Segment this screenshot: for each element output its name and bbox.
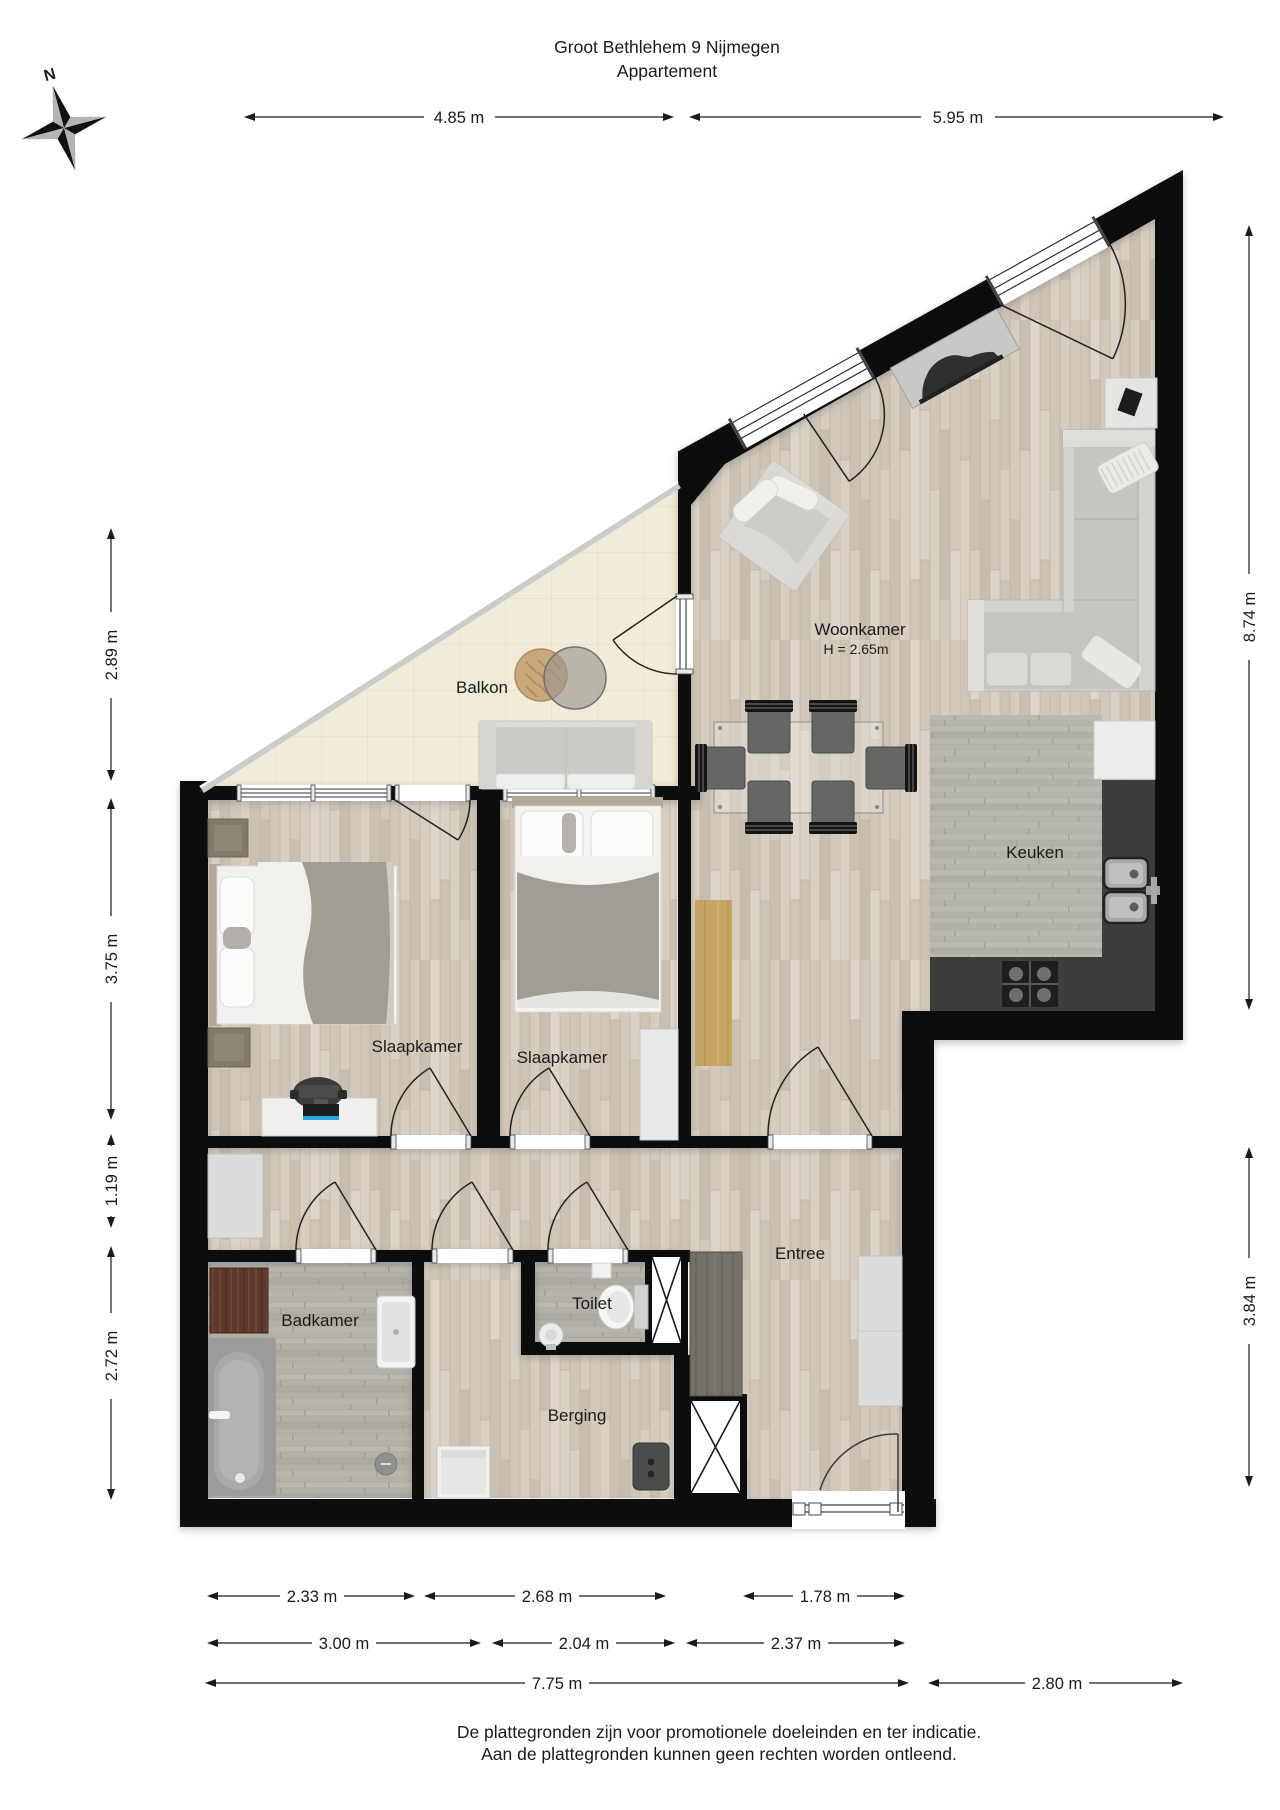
svg-text:Groot Bethlehem 9 Nijmegen: Groot Bethlehem 9 Nijmegen	[554, 37, 780, 57]
svg-text:3.00 m: 3.00 m	[319, 1635, 369, 1653]
svg-text:2.68 m: 2.68 m	[522, 1588, 572, 1606]
svg-text:1.78 m: 1.78 m	[800, 1588, 850, 1606]
svg-text:De plattegronden zijn voor pro: De plattegronden zijn voor promotionele …	[457, 1722, 981, 1742]
svg-text:Entree: Entree	[775, 1244, 825, 1263]
svg-text:Badkamer: Badkamer	[281, 1311, 359, 1330]
svg-text:2.89 m: 2.89 m	[103, 630, 121, 680]
svg-text:Appartement: Appartement	[617, 61, 717, 81]
svg-text:7.75 m: 7.75 m	[532, 1675, 582, 1693]
svg-text:2.37 m: 2.37 m	[771, 1635, 821, 1653]
svg-text:3.84 m: 3.84 m	[1241, 1276, 1259, 1326]
svg-text:1.19 m: 1.19 m	[103, 1156, 121, 1206]
svg-text:2.72 m: 2.72 m	[103, 1331, 121, 1381]
svg-text:8.74 m: 8.74 m	[1241, 592, 1259, 642]
svg-text:2.33 m: 2.33 m	[287, 1588, 337, 1606]
svg-text:2.80 m: 2.80 m	[1032, 1675, 1082, 1693]
svg-text:Woonkamer: Woonkamer	[814, 620, 906, 639]
svg-text:4.85 m: 4.85 m	[434, 109, 484, 127]
svg-text:Keuken: Keuken	[1006, 843, 1064, 862]
svg-text:5.95 m: 5.95 m	[933, 109, 983, 127]
svg-text:3.75 m: 3.75 m	[103, 934, 121, 984]
svg-text:Slaapkamer: Slaapkamer	[517, 1048, 608, 1067]
svg-text:2.04 m: 2.04 m	[559, 1635, 609, 1653]
svg-text:Aan de plattegronden kunnen ge: Aan de plattegronden kunnen geen rechten…	[481, 1744, 957, 1764]
svg-text:H = 2.65m: H = 2.65m	[824, 641, 889, 657]
svg-text:Berging: Berging	[548, 1406, 607, 1425]
svg-text:Toilet: Toilet	[572, 1294, 612, 1313]
svg-text:Balkon: Balkon	[456, 678, 508, 697]
svg-text:Slaapkamer: Slaapkamer	[372, 1037, 463, 1056]
